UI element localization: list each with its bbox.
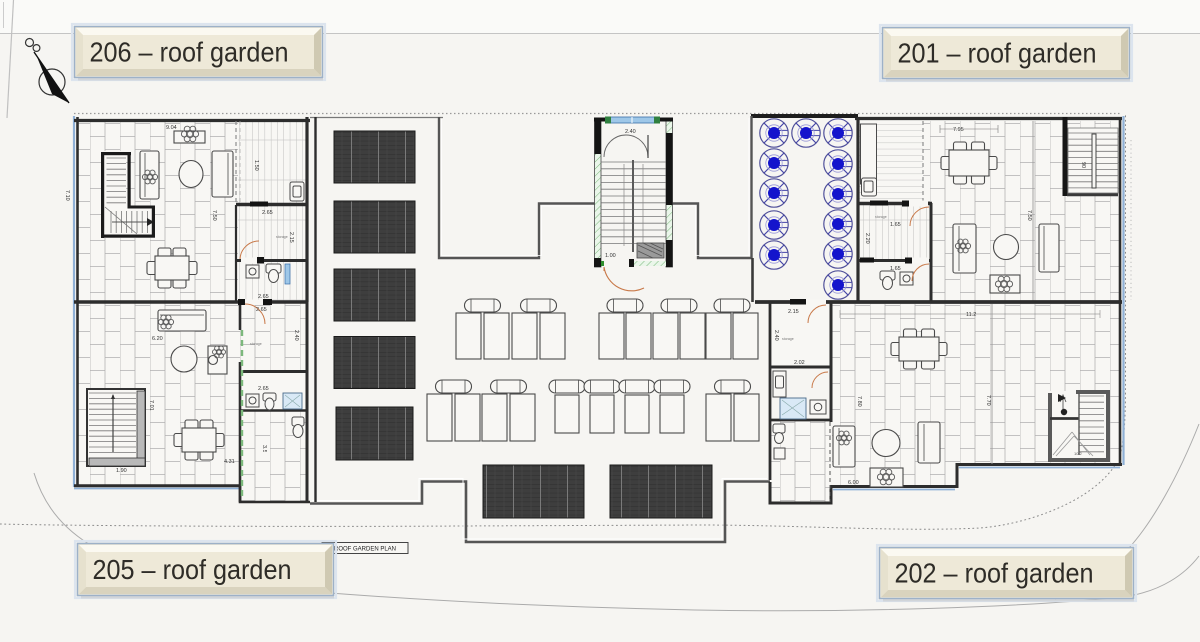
svg-text:9.04: 9.04 [166,125,177,131]
svg-text:2.15: 2.15 [288,232,294,243]
svg-text:1.90: 1.90 [116,468,127,474]
svg-text:storage: storage [276,235,288,239]
svg-text:2.65: 2.65 [262,210,273,216]
svg-text:storage: storage [250,342,262,346]
svg-text:1.65: 1.65 [890,222,901,228]
svg-text:7.01: 7.01 [148,400,154,411]
svg-text:2.15: 2.15 [788,309,799,315]
svg-text:201 – roof garden: 201 – roof garden [898,38,1097,69]
svg-text:6.20: 6.20 [152,336,163,342]
svg-text:7.50: 7.50 [1026,210,1032,221]
svg-text:2.65: 2.65 [256,307,267,313]
svg-text:1.00: 1.00 [605,253,616,259]
svg-text:1.50: 1.50 [253,160,259,171]
svg-text:10.2: 10.2 [1074,451,1083,456]
svg-text:7.10: 7.10 [64,190,70,201]
svg-text:2.40: 2.40 [773,330,779,341]
svg-text:202 – roof garden: 202 – roof garden [895,558,1094,589]
svg-text:2.40: 2.40 [625,129,636,135]
svg-text:7.80: 7.80 [856,396,862,407]
svg-text:2.02: 2.02 [794,360,805,366]
svg-text:7.70: 7.70 [985,395,991,406]
svg-text:205 – roof garden: 205 – roof garden [93,554,292,585]
svg-text:storage: storage [782,337,794,341]
svg-text:90: 90 [1080,162,1086,168]
svg-text:7.50: 7.50 [211,210,217,221]
svg-text:4.31: 4.31 [224,459,235,465]
svg-text:2.65: 2.65 [258,386,269,392]
svg-text:storage: storage [875,215,887,219]
svg-text:7.95: 7.95 [953,127,964,133]
svg-text:2.40: 2.40 [293,330,299,341]
svg-text:206 – roof garden: 206 – roof garden [90,37,289,68]
svg-text:ROOF GARDEN PLAN: ROOF GARDEN PLAN [334,547,396,553]
svg-text:6.00: 6.00 [848,480,859,486]
svg-text:2.20: 2.20 [864,233,870,244]
svg-text:11.2: 11.2 [966,312,976,318]
